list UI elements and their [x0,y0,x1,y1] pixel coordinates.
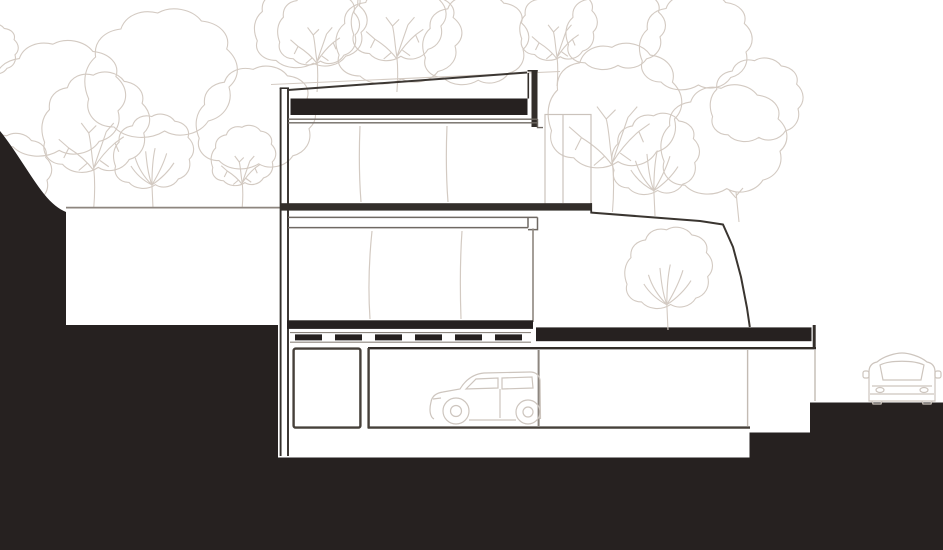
roof-ceiling-step [538,119,544,128]
tree-canopy-blob [0,24,18,75]
stair-volume-outline [545,115,591,205]
round-tree [114,114,194,208]
terrace-roof-band [536,327,812,341]
street-car [863,353,941,404]
tree-trunk [729,188,743,222]
building-section [280,71,816,456]
street-car-headlight-right [920,388,928,393]
garage-car-body [430,372,541,420]
tree-canopy-blob [196,66,315,169]
street-car-mirror-right [935,371,941,378]
round-tree [625,227,713,330]
roof-gravel-band [291,99,528,116]
garage-car-front-hub [451,406,462,417]
tree-canopy-blob [0,40,126,156]
terrace-tree [625,227,713,330]
upper-floor-mullion-2 [446,126,448,202]
deciduous-tree [548,43,682,212]
garage-car-rear-hub [523,407,533,417]
storage-room-outline [294,349,361,428]
first-floor-slab [281,203,592,210]
garage-car-rear-wheel [516,400,540,424]
ground-floor-mullion-2 [460,231,462,319]
ground-floor-mullion-1 [369,231,372,319]
tree-canopy-blob [661,85,787,194]
first-floor-ceiling-step [528,217,538,229]
upper-floor-mullion-1 [359,126,361,202]
roof-edge-line [288,73,527,91]
tree-canopy-blob [85,9,238,138]
tree-canopy-blob [639,0,752,90]
terrain-profile-line [592,213,750,327]
section-drawing-canvas [0,0,943,550]
garage-car-front-wheel [443,398,469,424]
tree-canopy-blob [254,0,367,68]
street-car-windshield [880,361,924,380]
tree-canopy-blob [336,0,462,84]
deciduous-tree [278,0,360,92]
street-car-headlight-left [876,388,884,393]
garage-car [430,372,541,424]
garage-roof-slab [287,320,533,329]
street-car-mirror-left [863,371,869,378]
architectural-section-drawing [0,0,943,550]
tree-canopy-blob [710,58,803,142]
deciduous-tree [42,72,150,208]
